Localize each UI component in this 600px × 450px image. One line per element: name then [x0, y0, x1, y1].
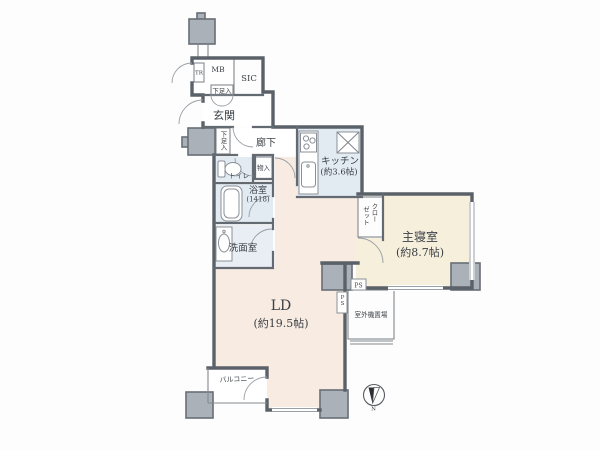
bathtub-icon [221, 186, 242, 221]
label-bedroom: 主寝室 [402, 229, 438, 244]
label-tr: TR [195, 71, 204, 77]
kitchen-sink-icon [302, 162, 316, 187]
window-ld-bottom [272, 407, 317, 413]
refrigerator-space-icon [337, 132, 359, 153]
pillar-ld-bottom [320, 390, 348, 418]
label-kitchen-size: (約3.6帖) [320, 167, 357, 178]
floor-plan-page: N 玄関 廊下 トイレ 物入 浴室 (1418) 洗面室 キッチン (約3.6帖… [0, 0, 600, 450]
floor-plan-drawing: N 玄関 廊下 トイレ 物入 浴室 (1418) 洗面室 キッチン (約3.6帖… [0, 0, 600, 450]
label-closet-col1: クロー [371, 203, 379, 223]
stove-icon [301, 133, 317, 152]
label-shoe-upper: 下足入 [212, 87, 232, 95]
label-sic: SIC [241, 74, 257, 84]
label-bath: 浴室 [249, 184, 267, 196]
label-closet-col2: ゼット [362, 205, 370, 226]
room-balcony [208, 368, 267, 403]
label-ld: LD [271, 298, 292, 314]
label-washroom: 洗面室 [229, 242, 258, 254]
label-kitchen: キッチン [321, 156, 359, 167]
label-ps-a: PS [354, 283, 362, 290]
label-bedroom-size: (約8.7帖) [396, 245, 444, 259]
label-toilet: トイレ [229, 172, 250, 180]
label-storage: 物入 [257, 163, 270, 172]
label-ps-b: PS [340, 295, 346, 307]
pillar-bottom-left [186, 392, 213, 418]
label-shoe-lower: 下足入 [220, 131, 228, 151]
door-arc-meterbox [172, 63, 192, 83]
window-bedroom-bottom [388, 285, 443, 291]
door-arc-entrance [179, 100, 203, 124]
label-outdoor-unit: 室外機置場 [355, 310, 388, 319]
label-hallway: 廊下 [256, 136, 276, 149]
label-entrance: 玄関 [213, 108, 235, 122]
pillar-left-mid [188, 128, 215, 155]
label-bath-size: (1418) [246, 196, 270, 204]
compass-icon: N [364, 385, 385, 413]
pillar-top [189, 19, 215, 44]
pillar-bedroom-right [451, 263, 480, 290]
label-ld-size: (約19.5帖) [253, 316, 308, 330]
outdoor-unit-railing [350, 341, 393, 344]
label-mb: MB [211, 65, 225, 74]
compass-north-label: N [371, 407, 376, 413]
pillar-center [322, 264, 352, 290]
window-bedroom-right [469, 202, 475, 280]
